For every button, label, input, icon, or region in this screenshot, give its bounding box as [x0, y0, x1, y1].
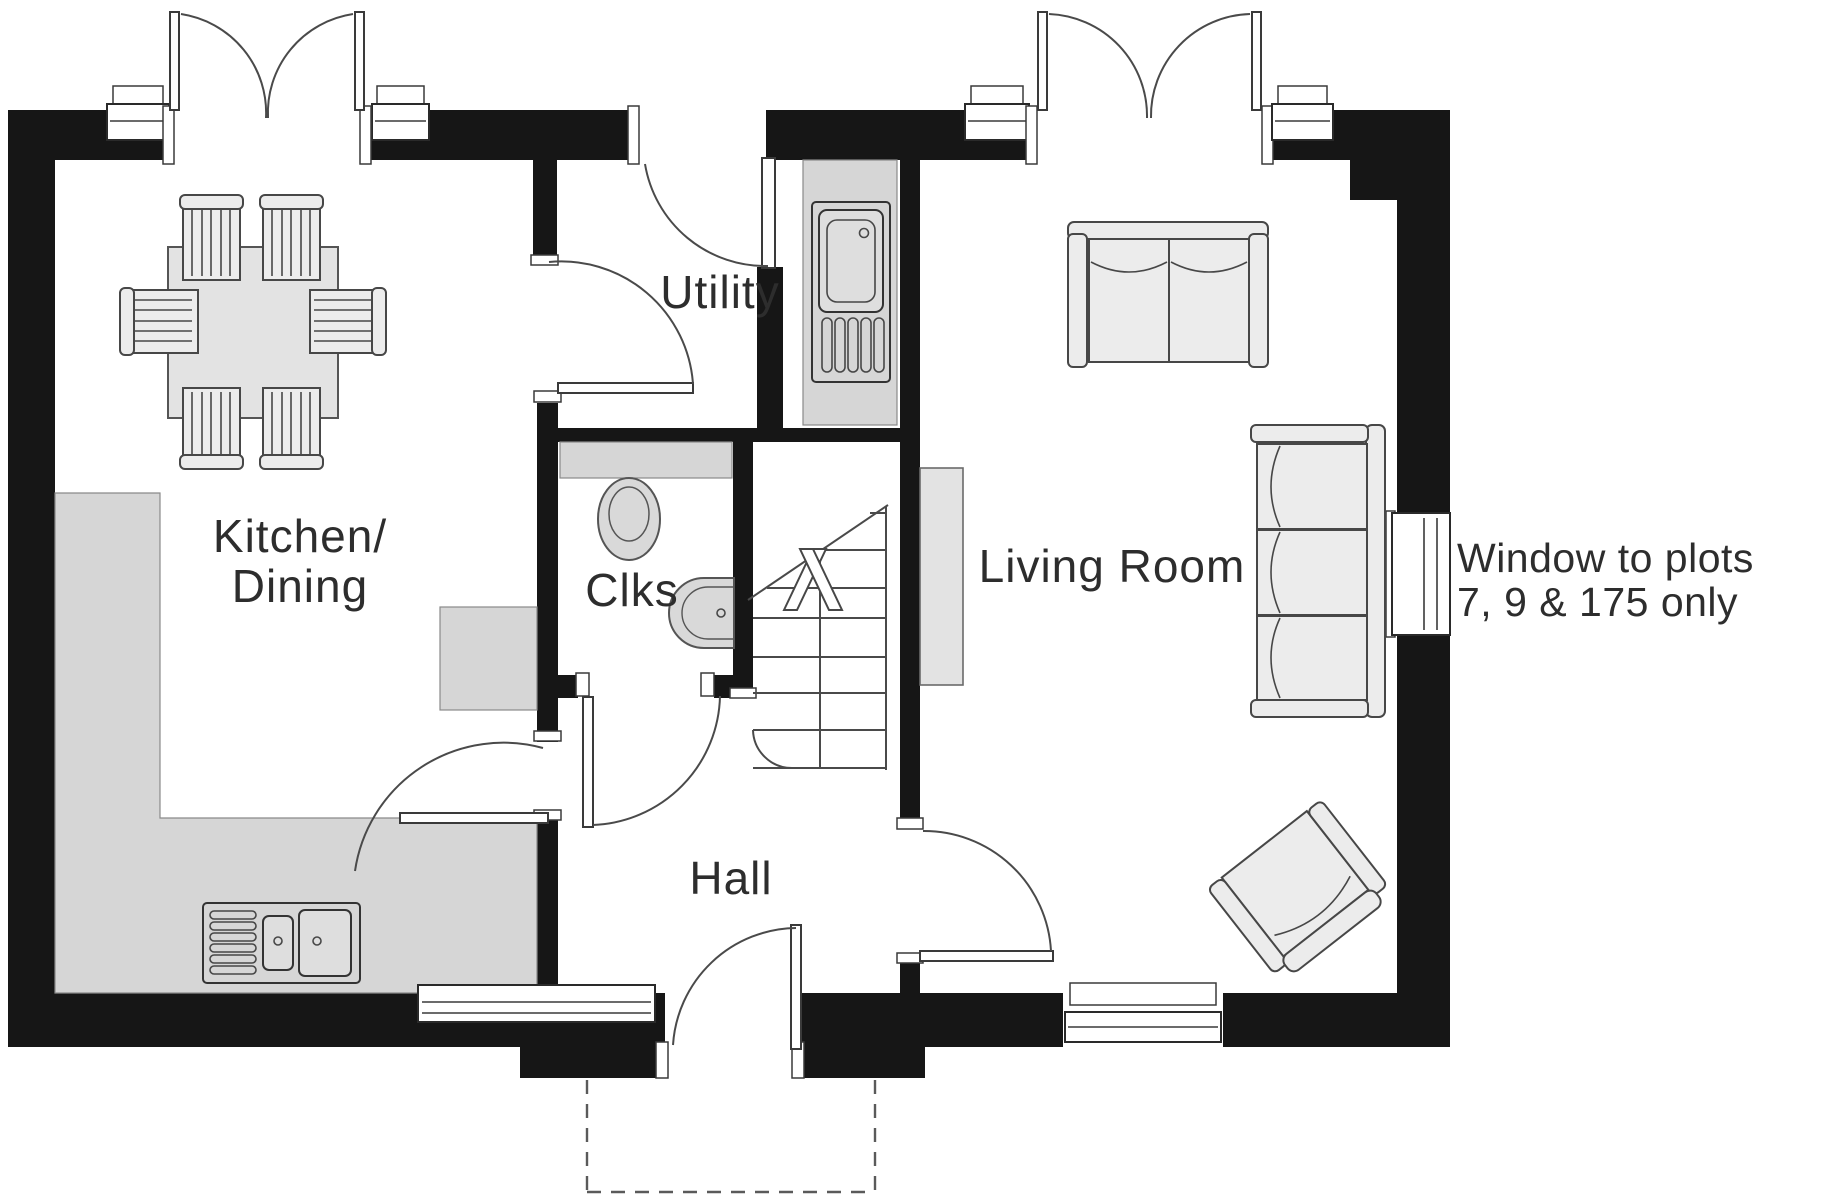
dining-chair-icon: [180, 195, 243, 280]
utility-sink-icon: [812, 202, 890, 382]
kitchen-dining-label-line2: Dining: [232, 560, 368, 612]
living-room-label: Living Room: [979, 540, 1246, 592]
dining-chair-icon: [260, 388, 323, 469]
dining-chair-icon: [310, 288, 386, 355]
dining-chair-icon: [180, 388, 243, 469]
cloakroom-vanity: [560, 442, 732, 478]
kitchen-sink-icon: [203, 903, 360, 983]
window-top-b: [372, 86, 429, 140]
armchair-icon: [1208, 800, 1395, 983]
window-top-a: [107, 86, 169, 140]
dining-chair-icon: [260, 195, 323, 280]
floor-plan-drawing: Kitchen/ Dining Utility Clks Hall Living…: [0, 0, 1824, 1200]
window-top-d: [1272, 86, 1333, 140]
kitchen-dining-label-line1: Kitchen/: [213, 510, 387, 562]
stairs: [748, 505, 888, 770]
hall-label: Hall: [689, 852, 772, 904]
sofa-3-seat-icon: [1251, 425, 1385, 717]
utility-label: Utility: [660, 266, 779, 318]
window-right-e: [1386, 511, 1450, 637]
porch-canopy-outline: [587, 1080, 875, 1192]
window-note-line1: Window to plots: [1457, 535, 1754, 581]
living-room-wall-unit: [920, 468, 963, 685]
window-bottom-kitchen: [418, 985, 655, 1022]
toilet-icon: [598, 478, 660, 560]
cloakroom-door: [583, 696, 720, 827]
window-note-line2: 7, 9 & 175 only: [1457, 579, 1738, 625]
labels: Kitchen/ Dining Utility Clks Hall Living…: [213, 266, 1754, 904]
living-room-french-doors: [1026, 12, 1273, 164]
sofa-2-seat-icon: [1068, 222, 1268, 367]
utility-back-door: [628, 106, 775, 268]
kitchen-french-doors: [163, 12, 371, 164]
cloakroom-label: Clks: [585, 564, 678, 616]
floor-plan: Kitchen/ Dining Utility Clks Hall Living…: [0, 0, 1824, 1200]
kitchen-appliance: [440, 607, 537, 710]
front-door: [656, 925, 804, 1078]
living-room-door: [920, 831, 1053, 961]
window-bottom-living: [1063, 983, 1223, 1047]
window-top-c: [965, 86, 1029, 140]
basin-icon: [669, 578, 734, 648]
dining-chair-icon: [120, 288, 198, 355]
